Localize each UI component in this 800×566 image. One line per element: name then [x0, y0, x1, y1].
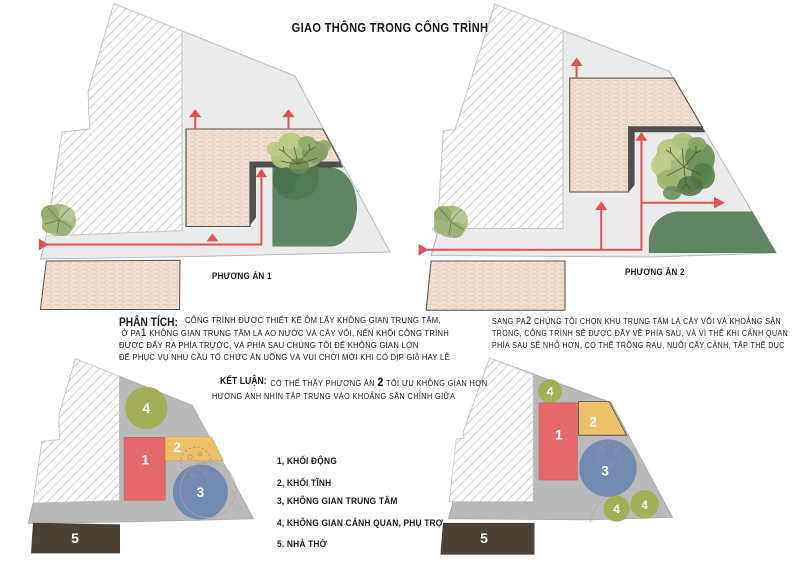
svg-text:4: 4 [547, 385, 554, 399]
svg-text:5: 5 [71, 530, 79, 546]
svg-text:1: 1 [141, 452, 149, 468]
svg-text:2: 2 [173, 439, 181, 455]
svg-text:2: 2 [589, 414, 597, 430]
svg-text:4: 4 [142, 400, 150, 416]
svg-text:3: 3 [197, 484, 205, 500]
svg-text:4: 4 [641, 498, 648, 512]
svg-text:3: 3 [601, 463, 609, 479]
svg-text:1: 1 [555, 427, 563, 443]
svg-text:4: 4 [613, 502, 620, 516]
svg-text:5: 5 [480, 530, 488, 546]
